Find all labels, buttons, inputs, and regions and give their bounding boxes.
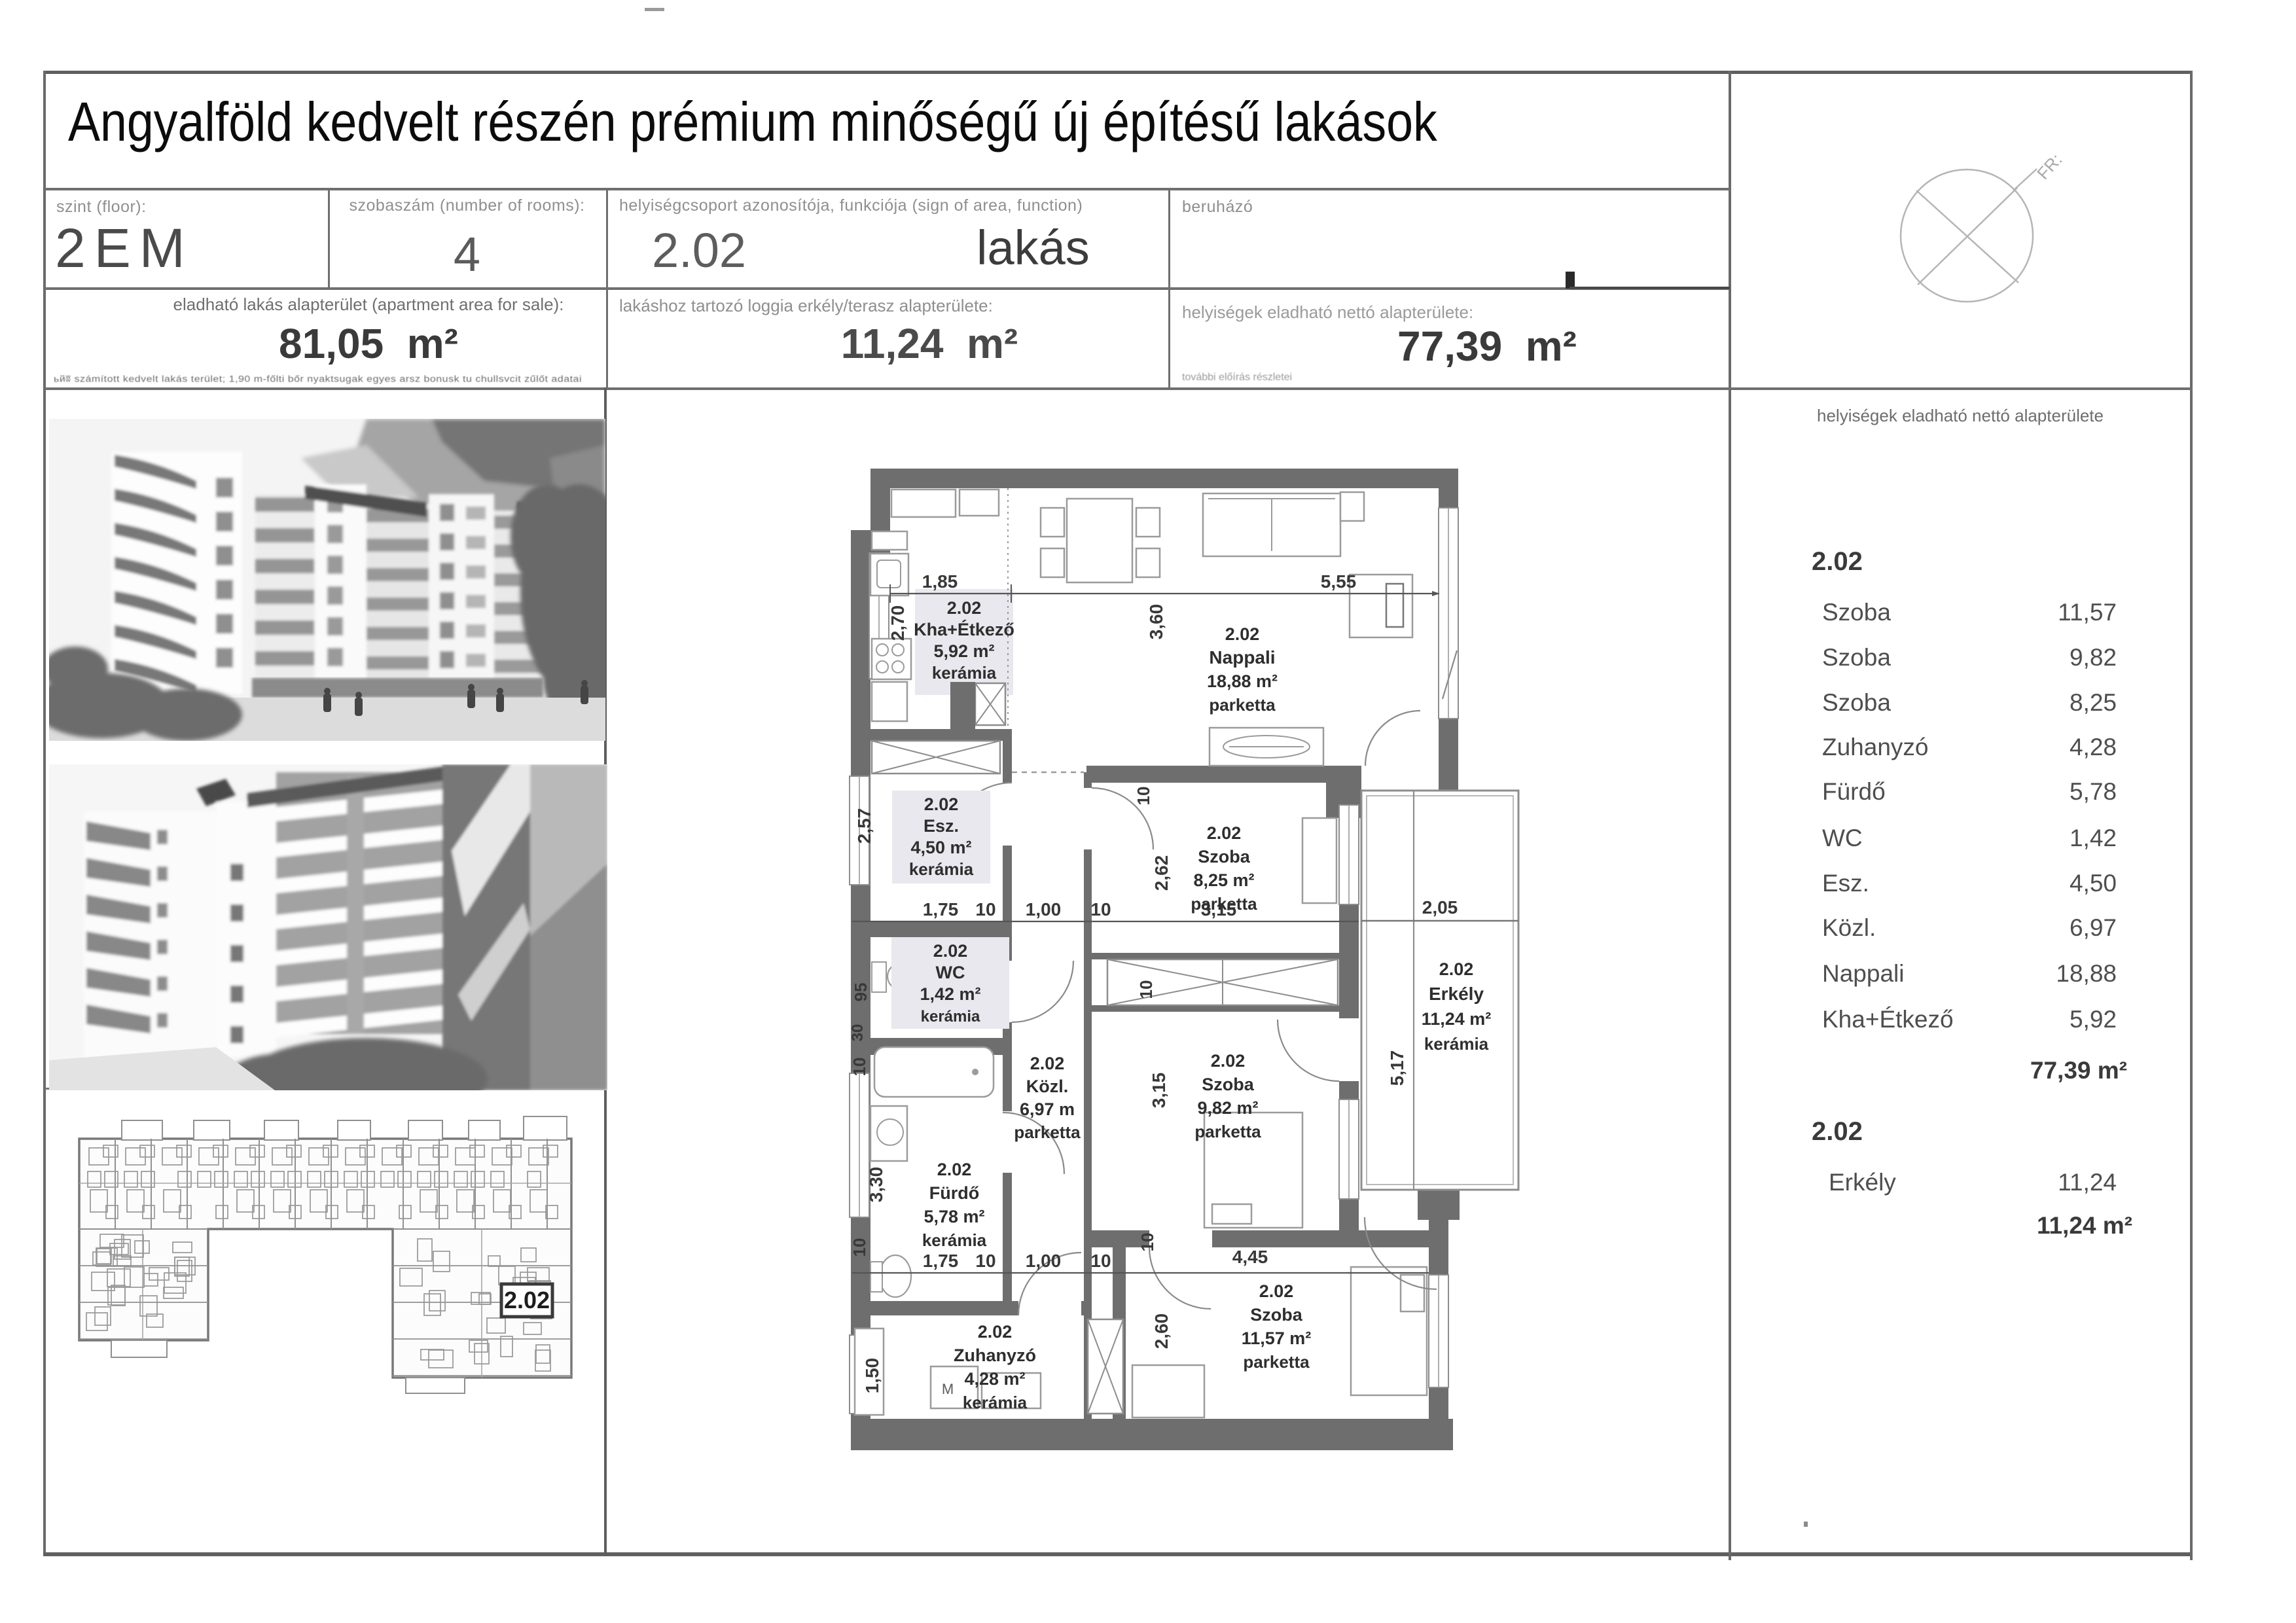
svg-text:11,24 m²: 11,24 m² [1422,1009,1492,1029]
svg-text:kerámia: kerámia [1424,1034,1489,1054]
svg-text:2.02: 2.02 [933,941,968,961]
svg-text:4,45: 4,45 [1232,1247,1268,1267]
svg-text:1,42 m²: 1,42 m² [920,984,980,1004]
svg-text:2,62: 2,62 [1151,855,1172,891]
svg-text:2,70: 2,70 [888,605,908,641]
svg-text:4,28 m²: 4,28 m² [964,1369,1025,1389]
svg-text:M: M [942,1381,954,1397]
svg-text:3,60: 3,60 [1146,604,1166,640]
svg-text:3,15: 3,15 [1149,1073,1169,1109]
svg-text:2.02: 2.02 [504,1287,550,1313]
svg-text:kerámia: kerámia [909,859,974,879]
svg-text:2.02: 2.02 [1030,1054,1065,1073]
svg-text:1,00: 1,00 [1026,899,1062,919]
svg-text:1,75: 1,75 [923,899,959,919]
svg-text:2.02: 2.02 [1259,1281,1294,1301]
svg-text:WC: WC [936,963,965,982]
svg-text:2.02: 2.02 [978,1322,1013,1342]
svg-text:6,97 m: 6,97 m [1020,1099,1075,1119]
svg-text:2.02: 2.02 [1207,823,1242,843]
svg-text:10: 10 [975,899,996,919]
svg-text:3,30: 3,30 [866,1167,886,1203]
svg-text:2.02: 2.02 [1225,624,1260,644]
svg-text:8,25 m²: 8,25 m² [1193,870,1254,890]
svg-text:Esz.: Esz. [924,816,959,836]
svg-text:kerámia: kerámia [932,663,997,683]
svg-text:2,57: 2,57 [854,808,874,844]
svg-text:2.02: 2.02 [1211,1051,1246,1071]
svg-text:10: 10 [1134,787,1153,806]
svg-text:1,75: 1,75 [923,1251,959,1271]
svg-text:2.02: 2.02 [1439,959,1474,979]
svg-text:10: 10 [1136,980,1156,999]
svg-text:1,85: 1,85 [922,571,958,592]
svg-text:parketta: parketta [1209,695,1276,715]
svg-text:Erkély: Erkély [1429,984,1484,1004]
svg-text:10: 10 [1138,1233,1157,1252]
svg-text:95: 95 [851,983,870,1002]
svg-text:5,78 m²: 5,78 m² [924,1207,984,1226]
svg-text:parketta: parketta [1243,1352,1310,1372]
svg-text:2,05: 2,05 [1422,897,1458,918]
svg-text:1,50: 1,50 [862,1358,882,1394]
svg-text:Zuhanyzó: Zuhanyzó [954,1346,1036,1365]
svg-text:5,55: 5,55 [1321,571,1357,592]
svg-text:Nappali: Nappali [1209,647,1275,668]
svg-text:30: 30 [849,1024,867,1042]
svg-text:Fürdő: Fürdő [929,1183,979,1203]
svg-text:2.02: 2.02 [924,794,959,814]
svg-text:Szoba: Szoba [1198,847,1250,866]
svg-text:2.02: 2.02 [947,598,982,618]
svg-text:11,57 m²: 11,57 m² [1242,1329,1312,1348]
svg-text:Szoba: Szoba [1202,1075,1254,1094]
svg-text:Közl.: Közl. [1026,1077,1069,1096]
svg-text:5,92 m²: 5,92 m² [933,641,994,661]
svg-text:parketta: parketta [1014,1122,1081,1142]
svg-text:10: 10 [975,1251,996,1271]
svg-text:1,00: 1,00 [1026,1251,1062,1271]
svg-text:2.02: 2.02 [937,1160,972,1179]
svg-text:parketta: parketta [1191,894,1257,914]
svg-text:9,82 m²: 9,82 m² [1197,1098,1258,1118]
svg-text:Szoba: Szoba [1250,1305,1302,1325]
svg-text:kerámia: kerámia [963,1393,1028,1412]
svg-text:10: 10 [850,1058,869,1077]
svg-text:kerámia: kerámia [921,1008,980,1026]
svg-text:4,50 m²: 4,50 m² [910,838,971,857]
svg-text:parketta: parketta [1194,1122,1261,1141]
svg-text:kerámia: kerámia [922,1230,987,1250]
svg-text:10: 10 [850,1238,869,1257]
svg-text:Kha+Étkező: Kha+Étkező [914,619,1014,639]
svg-text:10: 10 [1090,899,1111,919]
svg-text:18,88 m²: 18,88 m² [1207,671,1278,691]
svg-text:5,17: 5,17 [1387,1050,1407,1086]
svg-text:2,60: 2,60 [1151,1313,1172,1349]
svg-text:10: 10 [1090,1251,1111,1271]
